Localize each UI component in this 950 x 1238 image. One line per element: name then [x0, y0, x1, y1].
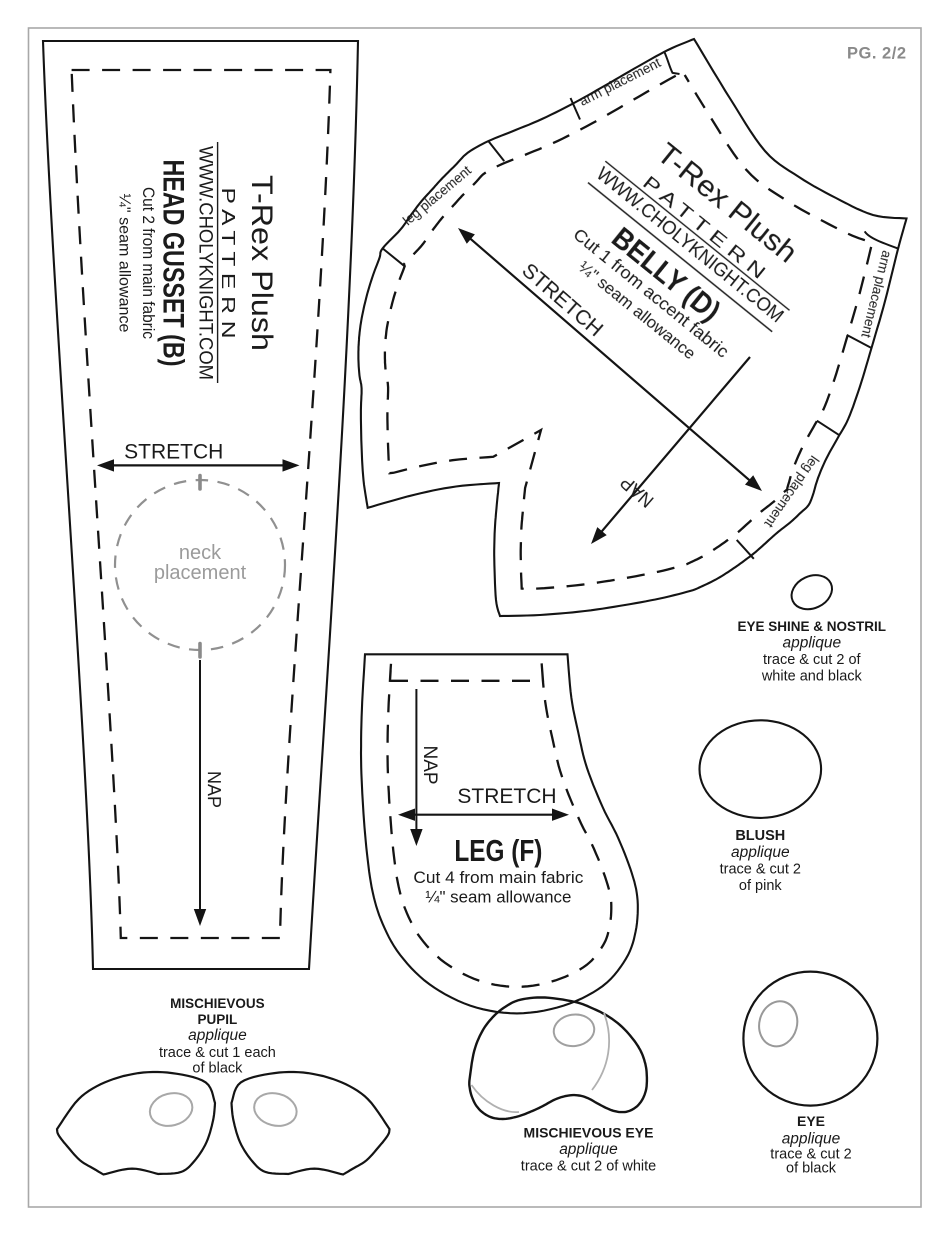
- svg-text:Cut 2 from main fabric: Cut 2 from main fabric: [139, 187, 157, 339]
- svg-text:EYE SHINE & NOSTRIL: EYE SHINE & NOSTRIL: [738, 619, 887, 634]
- svg-text:¼" seam allowance: ¼" seam allowance: [425, 888, 571, 907]
- svg-text:PG. 2/2: PG. 2/2: [847, 45, 906, 63]
- svg-text:placement: placement: [154, 562, 247, 584]
- svg-text:white and black: white and black: [761, 669, 863, 685]
- svg-text:applique: applique: [782, 635, 841, 652]
- svg-text:STRETCH: STRETCH: [457, 785, 556, 808]
- svg-text:trace & cut 2: trace & cut 2: [720, 862, 801, 878]
- svg-text:Cut 4 from main fabric: Cut 4 from main fabric: [413, 868, 583, 887]
- svg-text:applique: applique: [782, 1131, 841, 1148]
- svg-text:applique: applique: [731, 844, 790, 861]
- svg-text:P A T T E R N: P A T T E R N: [218, 188, 238, 339]
- svg-text:applique: applique: [188, 1027, 247, 1044]
- svg-text:¼" seam allowance: ¼" seam allowance: [116, 194, 133, 333]
- svg-text:of pink: of pink: [739, 878, 782, 894]
- svg-text:of black: of black: [786, 1161, 837, 1177]
- svg-text:NAP: NAP: [419, 745, 440, 784]
- svg-text:trace & cut 1 each: trace & cut 1 each: [159, 1045, 276, 1061]
- svg-text:BLUSH: BLUSH: [735, 828, 785, 844]
- svg-text:NAP: NAP: [204, 771, 224, 808]
- svg-text:T-Rex Plush: T-Rex Plush: [245, 175, 278, 351]
- svg-text:EYE: EYE: [797, 1113, 825, 1129]
- svg-text:neck: neck: [179, 542, 222, 564]
- svg-text:WWW.CHOLYKNIGHT.COM: WWW.CHOLYKNIGHT.COM: [195, 146, 216, 380]
- svg-text:of black: of black: [192, 1061, 243, 1077]
- svg-text:PUPIL: PUPIL: [198, 1012, 238, 1027]
- svg-text:MISCHIEVOUS: MISCHIEVOUS: [170, 996, 265, 1011]
- svg-text:LEG (F): LEG (F): [454, 833, 542, 868]
- svg-text:MISCHIEVOUS EYE: MISCHIEVOUS EYE: [524, 1125, 654, 1141]
- svg-text:trace & cut 2 of white: trace & cut 2 of white: [521, 1159, 656, 1175]
- svg-text:trace & cut 2 of: trace & cut 2 of: [763, 652, 861, 668]
- svg-text:applique: applique: [559, 1141, 618, 1158]
- svg-text:HEAD GUSSET (B): HEAD GUSSET (B): [157, 160, 190, 367]
- svg-text:STRETCH: STRETCH: [124, 441, 223, 464]
